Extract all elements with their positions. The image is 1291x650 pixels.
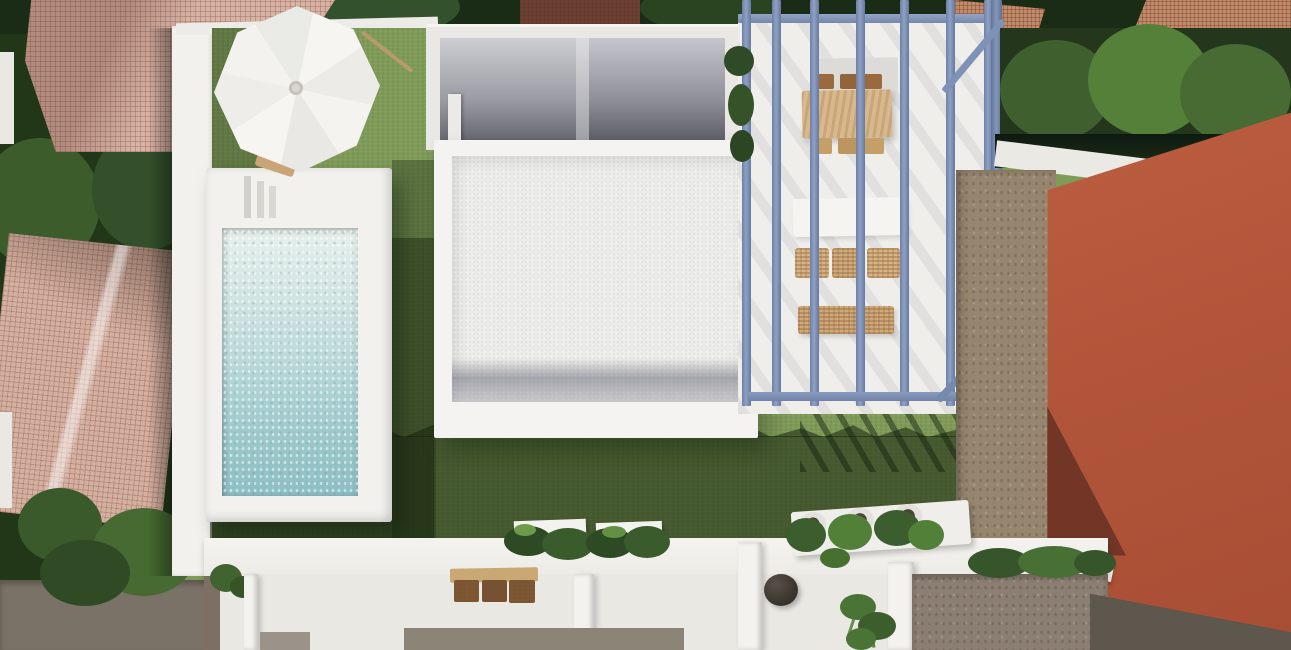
lower-wall [244,574,258,650]
potted-plant [786,518,826,552]
bench-cushion [482,580,507,602]
bench-cushion [454,580,479,602]
overhang-leaves [730,130,754,162]
wall-shadow [148,28,174,576]
street-bush [40,540,130,606]
dining-chair [862,138,884,154]
pergola-beam [856,0,865,406]
pergola-beam [772,0,781,406]
tree-shadow-streaks [800,408,958,472]
left-fence-piece [0,412,12,508]
lower-floor-grey [404,628,684,650]
villa-top-down-render [0,0,1291,650]
lower-floor-grey [260,632,310,650]
planter-shrub [624,526,670,558]
left-fence-piece [0,52,14,144]
parasol-pole-knob [289,81,303,95]
pergola-beam [810,0,819,406]
cutaway-room-right [589,38,725,150]
pool-steps-notch [244,176,251,218]
pergola-beam [900,0,909,406]
neighbour-brick-roof-top [520,0,640,24]
potted-plant-spill [820,548,850,568]
dining-chair-back [864,74,882,89]
tiled-patio-floor [912,574,1108,650]
pergola-beam [946,0,955,406]
bench-cushion [509,580,535,603]
corner-plant [846,628,876,650]
fire-bowl [764,574,798,606]
interior-partition-wall [576,38,589,150]
pool-steps-notch [257,181,264,218]
roof-gutter-band [452,358,740,402]
potted-plant [908,520,944,550]
planter-shrub-highlight [514,524,536,536]
interior-door [448,94,461,142]
lower-wall [888,562,914,650]
patio-greens [1074,550,1116,576]
overhang-leaves [728,84,754,126]
potted-plant [828,514,872,550]
lower-wall [738,542,762,650]
overhang-leaves [724,46,754,76]
pool-steps-notch [269,186,276,218]
planter-shrub-highlight [602,526,626,538]
swimming-pool-water [222,228,358,496]
rattan-cushion [867,248,900,278]
